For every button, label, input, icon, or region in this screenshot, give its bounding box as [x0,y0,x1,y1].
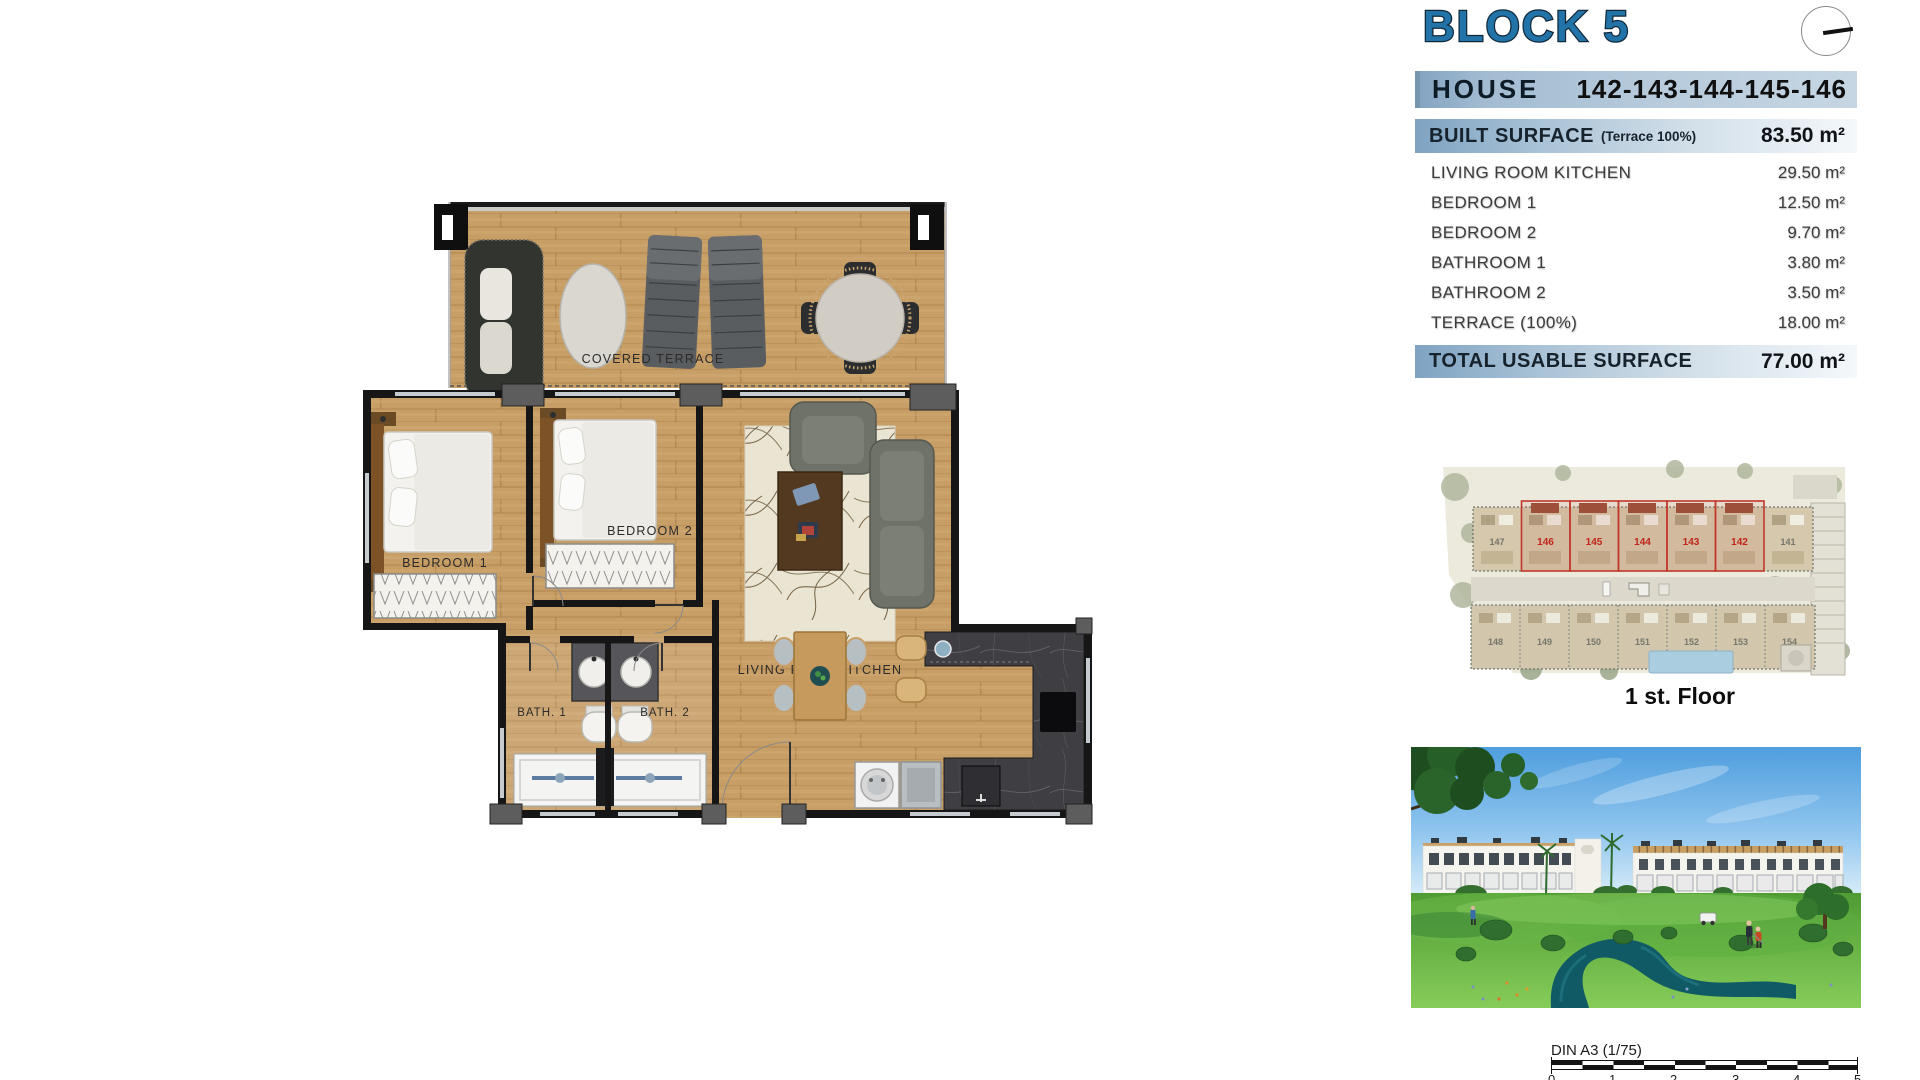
total-surface-label: TOTAL USABLE SURFACE [1429,350,1692,373]
row-value: 3.80 m² [1787,253,1845,273]
building-strip-top: 146 145 144 143 142 147 141 [1473,501,1813,571]
unit-number: 153 [1733,637,1748,647]
unit-number: 144 [1634,537,1651,548]
scale-tick: 4 [1793,1072,1800,1080]
wardrobe [546,544,674,588]
scale-tick: 2 [1670,1072,1677,1080]
unit-number: 150 [1586,637,1601,647]
terrace-pillar-left [434,204,468,250]
table-row: BATHROOM 2 3.50 m² [1415,278,1857,308]
row-label: BATHROOM 1 [1431,253,1546,273]
row-label: BEDROOM 1 [1431,193,1537,213]
table-row: LIVING ROOM KITCHEN 29.50 m² [1415,158,1857,188]
unit-number: 152 [1684,637,1699,647]
kitchen-sink-small [935,641,951,657]
tower [1575,839,1601,895]
row-value: 9.70 m² [1787,223,1845,243]
cooktop [1040,692,1076,732]
house-bar: HOUSE 142-143-144-145-146 [1415,71,1857,108]
built-surface-bar: BUILT SURFACE (Terrace 100%) 83.50 m² [1415,119,1857,153]
room-label-terrace: COVERED TERRACE [582,352,725,366]
development-photo [1411,747,1861,1008]
sun-lounger [642,235,703,370]
unit-number: 151 [1635,637,1650,647]
compass-icon [1801,6,1851,56]
unit-number: 143 [1683,537,1700,548]
coffee-table [778,472,842,570]
table-row: TERRACE (100%) 18.00 m² [1415,308,1857,338]
unit-number: 147 [1489,537,1504,547]
unit-number: 142 [1731,537,1748,548]
row-label: BATHROOM 2 [1431,283,1546,303]
terrace-sofa [465,240,543,398]
built-surface-label: BUILT SURFACE [1429,125,1594,148]
site-small-building [1781,645,1811,671]
building-strip-bottom: 148 149 150 151 152 153 154 [1471,605,1815,669]
sofa [870,440,934,608]
unit-number: 141 [1780,537,1795,547]
bar-stool [896,678,926,702]
row-label: BEDROOM 2 [1431,223,1537,243]
built-surface-note: (Terrace 100%) [1601,129,1696,144]
table-row: BATHROOM 1 3.80 m² [1415,248,1857,278]
row-label: LIVING ROOM KITCHEN [1431,163,1631,183]
scale-bar [1551,1060,1858,1070]
scale-tick: 3 [1732,1072,1739,1080]
sun-lounger [708,235,767,369]
table-row: BEDROOM 2 9.70 m² [1415,218,1857,248]
table-row: BEDROOM 1 12.50 m² [1415,188,1857,218]
page-title: BLOCK 5 [1423,2,1630,52]
unit-number: 148 [1488,637,1503,647]
room-label-bedroom1: BEDROOM 1 [402,556,488,570]
scale-label: DIN A3 (1/75) [1551,1042,1642,1059]
covered-terrace: COVERED TERRACE [434,202,947,398]
row-label: TERRACE (100%) [1431,313,1577,333]
house-label: HOUSE [1432,74,1539,105]
site-plan-caption: 1 st. Floor [1555,683,1805,710]
floor-plan: COVERED TERRACE L [350,188,1110,848]
armchair [790,402,876,474]
bedroom-1: BEDROOM 1 [370,412,496,618]
scale-tick: 0 [1548,1072,1555,1080]
row-value: 3.50 m² [1787,283,1845,303]
info-panel: BLOCK 5 HOUSE 142-143-144-145-146 BUILT … [1415,0,1857,440]
total-surface-bar: TOTAL USABLE SURFACE 77.00 m² [1415,345,1857,378]
pool [1649,651,1733,673]
house-numbers: 142-143-144-145-146 [1576,74,1847,105]
brochure-page: COVERED TERRACE L [0,0,1920,1080]
unit-number: 145 [1586,537,1603,548]
surface-rows: LIVING ROOM KITCHEN 29.50 m² BEDROOM 1 1… [1415,158,1857,338]
row-value: 12.50 m² [1778,193,1845,213]
wardrobe [374,574,496,618]
highlighted-units: 146 145 144 143 142 [1522,501,1765,571]
unit-number: 146 [1537,537,1554,548]
built-surface-value: 83.50 m² [1761,124,1845,148]
total-surface-value: 77.00 m² [1761,350,1845,374]
room-label-bedroom2: BEDROOM 2 [607,524,693,538]
terrace-pillar-right [910,204,944,250]
site-road [1471,577,1815,601]
room-label-bath1: BATH. 1 [517,707,567,719]
scale-tick: 5 [1854,1072,1861,1080]
unit-number: 149 [1537,637,1552,647]
row-value: 18.00 m² [1778,313,1845,333]
bar-stool [896,636,926,660]
row-value: 29.50 m² [1778,163,1845,183]
scale-tick: 1 [1609,1072,1616,1080]
site-plan: 146 145 144 143 142 147 141 [1413,455,1857,681]
room-label-bath2: BATH. 2 [640,707,690,719]
